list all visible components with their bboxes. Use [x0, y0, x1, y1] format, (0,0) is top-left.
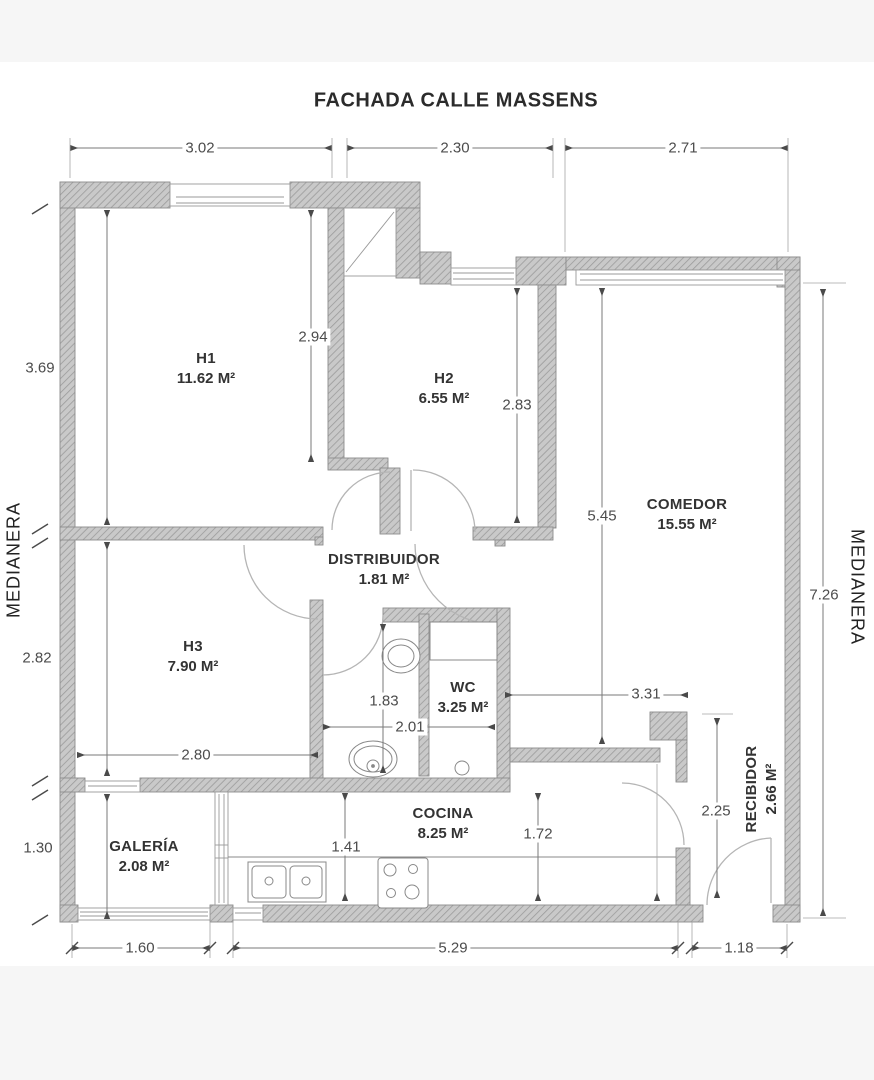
dim-top-2: 2.30: [437, 140, 472, 157]
dim-interior-bath-height: 1.83: [366, 693, 401, 710]
wall-cocina-top: [140, 778, 510, 792]
window-galeria-bottom: [78, 908, 210, 920]
room-label-comedor: COMEDOR 15.55 M²: [647, 495, 727, 536]
wall-recibidor-divider-lower: [676, 848, 690, 908]
door-arc-h2: [413, 470, 475, 532]
door-stop-comedor: [495, 540, 505, 546]
party-wall-label-right: MEDIANERA: [847, 529, 868, 645]
wall-pillar-h2-comedor: [516, 257, 566, 285]
wall-recibidor-divider-upper: [676, 740, 687, 782]
wall-h2-top-step: [420, 252, 451, 284]
wall-h3-bottom-left: [60, 778, 85, 792]
floorplan-page: FACHADA CALLE MASSENS MEDIANERA MEDIANER…: [0, 0, 874, 1080]
fixtures-layer: [228, 622, 676, 908]
wall-jog-horizontal: [328, 458, 388, 470]
wall-left-exterior: [60, 182, 75, 922]
dim-left-3: 1.30: [23, 840, 52, 857]
window-h2-top: [451, 268, 516, 285]
room-label-distribuidor: DISTRIBUIDOR 1.81 M²: [328, 550, 440, 591]
wall-bath-wc-divider: [419, 614, 429, 776]
window-comedor-top: [576, 270, 785, 285]
wall-h2-foot: [473, 527, 553, 540]
room-label-wc: WC 3.25 M²: [438, 678, 489, 719]
window-cocina-bottom: [233, 908, 263, 920]
wall-right-exterior: [785, 270, 800, 922]
wall-h1-h3-divider: [60, 527, 323, 540]
room-label-h3: H3 7.90 M²: [168, 637, 219, 678]
dim-interior-bath-width: 2.01: [392, 719, 427, 736]
wall-jog-vertical: [380, 468, 400, 534]
room-label-cocina: COCINA 8.25 M²: [413, 804, 474, 845]
wall-closet-right: [396, 208, 420, 278]
door-arc-h3: [244, 545, 318, 619]
floorplan-drawing: [0, 0, 874, 1080]
glazed-partition-galeria: [215, 792, 228, 905]
door-arc-bath: [323, 615, 383, 675]
dim-top-1: 3.02: [182, 140, 217, 157]
dim-interior-cocina-right-height: 1.72: [520, 826, 555, 843]
wall-bottom-main: [263, 905, 703, 922]
wall-bath-left: [310, 600, 323, 790]
wall-galeria-foot: [210, 905, 233, 922]
dim-interior-recibidor-height: 2.25: [698, 803, 733, 820]
wall-bottom-left-bit: [60, 905, 78, 922]
dim-left-1: 3.69: [25, 360, 54, 377]
room-label-recibidor: RECIBIDOR 2.66 M²: [742, 746, 783, 833]
dim-bottom-2: 5.29: [435, 940, 470, 957]
door-stop-h3: [315, 537, 323, 545]
wall-top-h1-left: [60, 182, 170, 208]
wall-wc-right: [497, 608, 510, 790]
wall-top-closet: [290, 182, 420, 208]
dim-interior-h2-height: 2.83: [499, 397, 534, 414]
room-label-h1: H1 11.62 M²: [177, 349, 235, 390]
wall-h2-comedor-divider: [538, 285, 556, 528]
dim-right-1: 7.26: [806, 587, 841, 604]
wall-comedor-bottom: [510, 748, 660, 762]
dim-interior-cocina-left-height: 1.41: [328, 839, 363, 856]
wall-bottom-right-bit: [773, 905, 800, 922]
wall-recibidor-corner: [650, 712, 687, 740]
window-h3-galeria: [85, 781, 140, 792]
dim-left-2: 2.82: [22, 650, 51, 667]
dim-top-3: 2.71: [665, 140, 700, 157]
dim-interior-h3-width: 2.80: [178, 747, 213, 764]
dim-interior-comedor-height: 5.45: [584, 508, 619, 525]
dim-interior-comedor-width: 3.31: [628, 686, 663, 703]
dim-interior-h1-height: 2.94: [295, 329, 330, 346]
wc-cabinet: [430, 622, 497, 660]
party-wall-label-left: MEDIANERA: [4, 502, 25, 618]
room-label-h2: H2 6.55 M²: [419, 369, 470, 410]
wc-drain-icon: [455, 761, 469, 775]
plan-title: FACHADA CALLE MASSENS: [314, 90, 598, 113]
wall-top-comedor: [566, 257, 800, 270]
door-arc-recibidor-cocina: [622, 783, 684, 845]
dim-bottom-3: 1.18: [721, 940, 756, 957]
wall-bath-top: [383, 608, 500, 622]
dim-bottom-1: 1.60: [122, 940, 157, 957]
room-label-galeria: GALERÍA 2.08 M²: [109, 837, 179, 878]
